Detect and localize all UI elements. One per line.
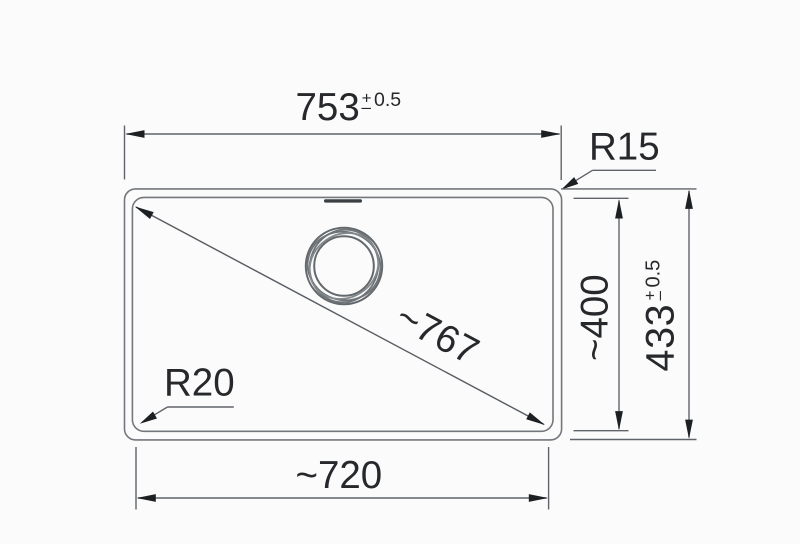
svg-text:~720: ~720 [296,454,383,497]
svg-text:~400: ~400 [574,274,617,361]
svg-text:R20: R20 [164,362,235,405]
svg-text:753: 753 [296,86,360,129]
svg-text:–: – [362,98,372,117]
svg-text:R15: R15 [589,126,660,169]
svg-text:0.5: 0.5 [643,260,665,288]
svg-text:~767: ~767 [389,295,486,374]
svg-text:433: 433 [639,304,683,372]
svg-text:–: – [650,290,669,300]
svg-text:0.5: 0.5 [374,89,401,111]
